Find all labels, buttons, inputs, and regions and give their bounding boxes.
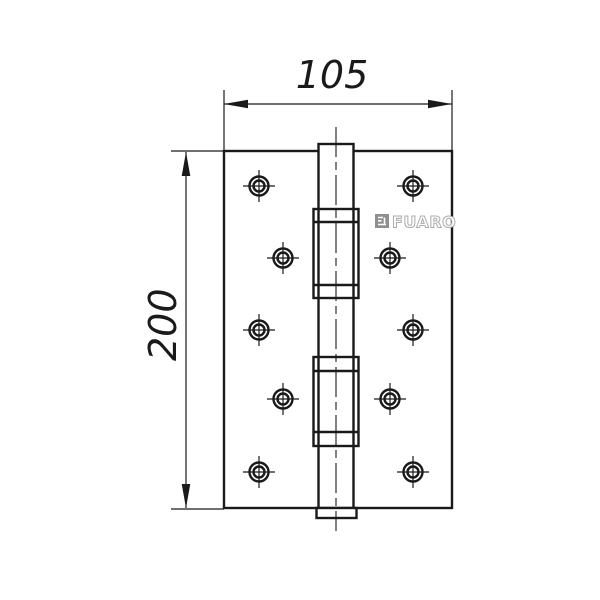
height-dimension: 200	[141, 151, 224, 509]
brand-logo-text: FUARO	[392, 213, 456, 232]
arrowhead-up-icon	[182, 152, 191, 176]
width-dimension: 105	[224, 53, 452, 150]
hinge-technical-drawing: 105 200 FUARO	[0, 0, 600, 600]
height-dimension-label: 200	[141, 288, 185, 361]
arrowhead-left-icon	[224, 100, 248, 109]
drawing-canvas: 105 200 FUARO	[0, 0, 600, 600]
arrowhead-right-icon	[428, 100, 452, 109]
width-dimension-label: 105	[296, 53, 369, 97]
arrowhead-down-icon	[182, 484, 191, 508]
brand-logo-icon	[375, 214, 389, 228]
